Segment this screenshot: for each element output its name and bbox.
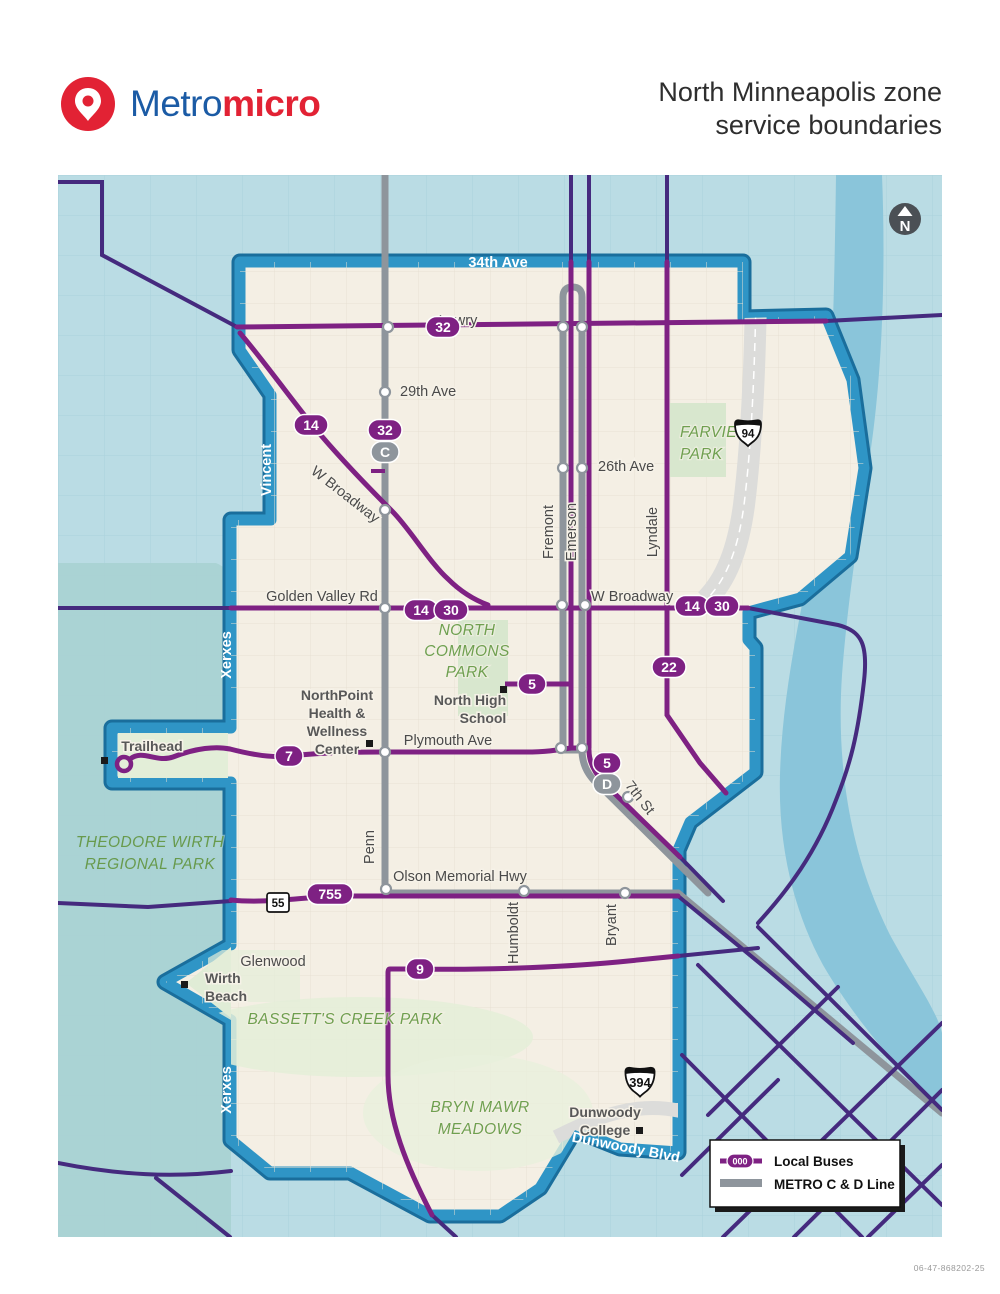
poi-northpoint-4: Center	[315, 741, 360, 757]
mn55-shield: 55	[267, 893, 289, 912]
svg-text:30: 30	[443, 602, 459, 618]
poi-wirth-1: Wirth	[205, 970, 241, 986]
park-label-commons-2: COMMONS	[424, 643, 510, 660]
service-map: Lowry 29th Ave 26th Ave W Broadway Golde…	[58, 175, 942, 1237]
svg-text:9: 9	[416, 961, 424, 977]
route-badge-14-east: 14	[675, 596, 709, 617]
svg-text:5: 5	[603, 755, 611, 771]
street-label-bryant: Bryant	[604, 904, 620, 946]
street-label-olson: Olson Memorial Hwy	[393, 869, 527, 885]
svg-text:14: 14	[684, 598, 700, 614]
boundary-label-xerxes-lower: Xerxes	[219, 1066, 235, 1114]
svg-text:C: C	[380, 444, 390, 460]
svg-text:22: 22	[661, 659, 677, 675]
poi-dunwoody-1: Dunwoody	[569, 1104, 641, 1120]
park-label-farview-2: PARK	[680, 446, 723, 463]
page: Metromicro North Minneapolis zone servic…	[0, 0, 1000, 1294]
poi-northpoint-2: Health &	[309, 705, 366, 721]
boundary-label-xerxes-upper: Xerxes	[219, 631, 235, 679]
route-badge-22: 22	[652, 657, 686, 678]
theodore-wirth-park-area	[58, 563, 231, 1237]
metro-badge-c: C	[371, 442, 399, 463]
north-arrow-label: N	[900, 218, 911, 235]
route-badge-755: 755	[307, 884, 353, 905]
map-canvas: Lowry 29th Ave 26th Ave W Broadway Golde…	[58, 175, 942, 1237]
north-arrow: N	[889, 203, 921, 235]
street-label-humboldt: Humboldt	[506, 902, 522, 964]
street-label-plymouth: Plymouth Ave	[404, 733, 492, 749]
park-label-wirth-2: REGIONAL PARK	[85, 856, 216, 873]
route-badge-30-goldenvalley: 30	[434, 600, 468, 621]
street-label-w-broadway-e: W Broadway	[591, 589, 674, 605]
trailhead-marker	[101, 757, 108, 764]
poi-wirth-2: Beach	[205, 988, 247, 1004]
svg-text:7: 7	[285, 748, 293, 764]
poi-northhigh-1: North High	[434, 692, 506, 708]
svg-text:14: 14	[303, 417, 319, 433]
park-label-wirth-1: THEODORE WIRTH	[76, 834, 225, 851]
park-label-bassetts: BASSETT'S CREEK PARK	[248, 1011, 443, 1028]
svg-text:55: 55	[272, 898, 285, 910]
street-label-penn: Penn	[362, 830, 378, 864]
park-label-commons-3: PARK	[446, 664, 489, 681]
park-label-brynmawr-1: BRYN MAWR	[430, 1099, 529, 1116]
title-line1: North Minneapolis zone	[658, 76, 942, 109]
brand-metro: Metro	[130, 83, 222, 124]
route-badge-32-penn: 32	[368, 420, 402, 441]
metromicro-logo: Metromicro	[60, 76, 320, 132]
brand-text: Metromicro	[130, 83, 320, 125]
document-code: 06-47-868202-25	[914, 1263, 985, 1273]
svg-text:32: 32	[377, 422, 393, 438]
svg-text:394: 394	[629, 1075, 651, 1090]
route-badge-5-school: 5	[518, 674, 546, 695]
boundary-label-34th: 34th Ave	[468, 255, 527, 271]
poi-trailhead: Trailhead	[121, 738, 182, 754]
svg-text:32: 32	[435, 319, 451, 335]
street-label-26th: 26th Ave	[598, 459, 654, 475]
metro-badge-d: D	[593, 774, 621, 795]
park-label-brynmawr-2: MEADOWS	[438, 1121, 523, 1138]
poi-northpoint-1: NorthPoint	[301, 687, 374, 703]
street-label-lyndale: Lyndale	[645, 507, 661, 557]
legend-badge-000: 000	[732, 1157, 747, 1167]
northpoint-marker	[366, 740, 373, 747]
title-line2: service boundaries	[658, 109, 942, 142]
legend-local-buses-label: Local Buses	[774, 1154, 854, 1169]
svg-text:30: 30	[714, 598, 730, 614]
svg-text:755: 755	[318, 886, 342, 902]
svg-text:14: 14	[413, 602, 429, 618]
svg-text:D: D	[602, 776, 612, 792]
legend-metro-swatch	[720, 1179, 762, 1187]
route-badge-14-broadway: 14	[294, 415, 328, 436]
legend-box	[710, 1140, 900, 1207]
header: Metromicro North Minneapolis zone servic…	[0, 0, 1000, 175]
location-pin-icon	[60, 76, 116, 132]
street-label-29th: 29th Ave	[400, 384, 456, 400]
brand-micro: micro	[222, 83, 320, 124]
park-label-commons-1: NORTH	[439, 622, 496, 639]
svg-text:5: 5	[528, 676, 536, 692]
poi-northhigh-2: School	[460, 710, 507, 726]
street-label-fremont: Fremont	[541, 505, 557, 559]
route-badge-9: 9	[406, 959, 434, 980]
route-badge-5-plymouth: 5	[593, 753, 621, 774]
boundary-label-vincent: Vincent	[259, 444, 275, 496]
route-badge-7: 7	[275, 746, 303, 767]
street-label-glenwood: Glenwood	[240, 954, 305, 970]
street-label-golden-valley: Golden Valley Rd	[266, 589, 378, 605]
route-badge-30-east: 30	[705, 596, 739, 617]
poi-northpoint-3: Wellness	[307, 723, 368, 739]
legend-metro-label: METRO C & D Line	[774, 1177, 895, 1192]
route-badge-14-goldenvalley: 14	[404, 600, 438, 621]
svg-text:94: 94	[742, 429, 755, 441]
wirth-beach-marker	[181, 981, 188, 988]
legend: 000 Local Buses METRO C & D Line	[710, 1140, 905, 1212]
dunwoody-marker	[636, 1127, 643, 1134]
legend-local-buses: 000 Local Buses	[720, 1154, 854, 1169]
page-title: North Minneapolis zone service boundarie…	[658, 76, 942, 142]
route-badge-32-lowry: 32	[426, 317, 460, 338]
street-label-emerson: Emerson	[564, 503, 580, 561]
